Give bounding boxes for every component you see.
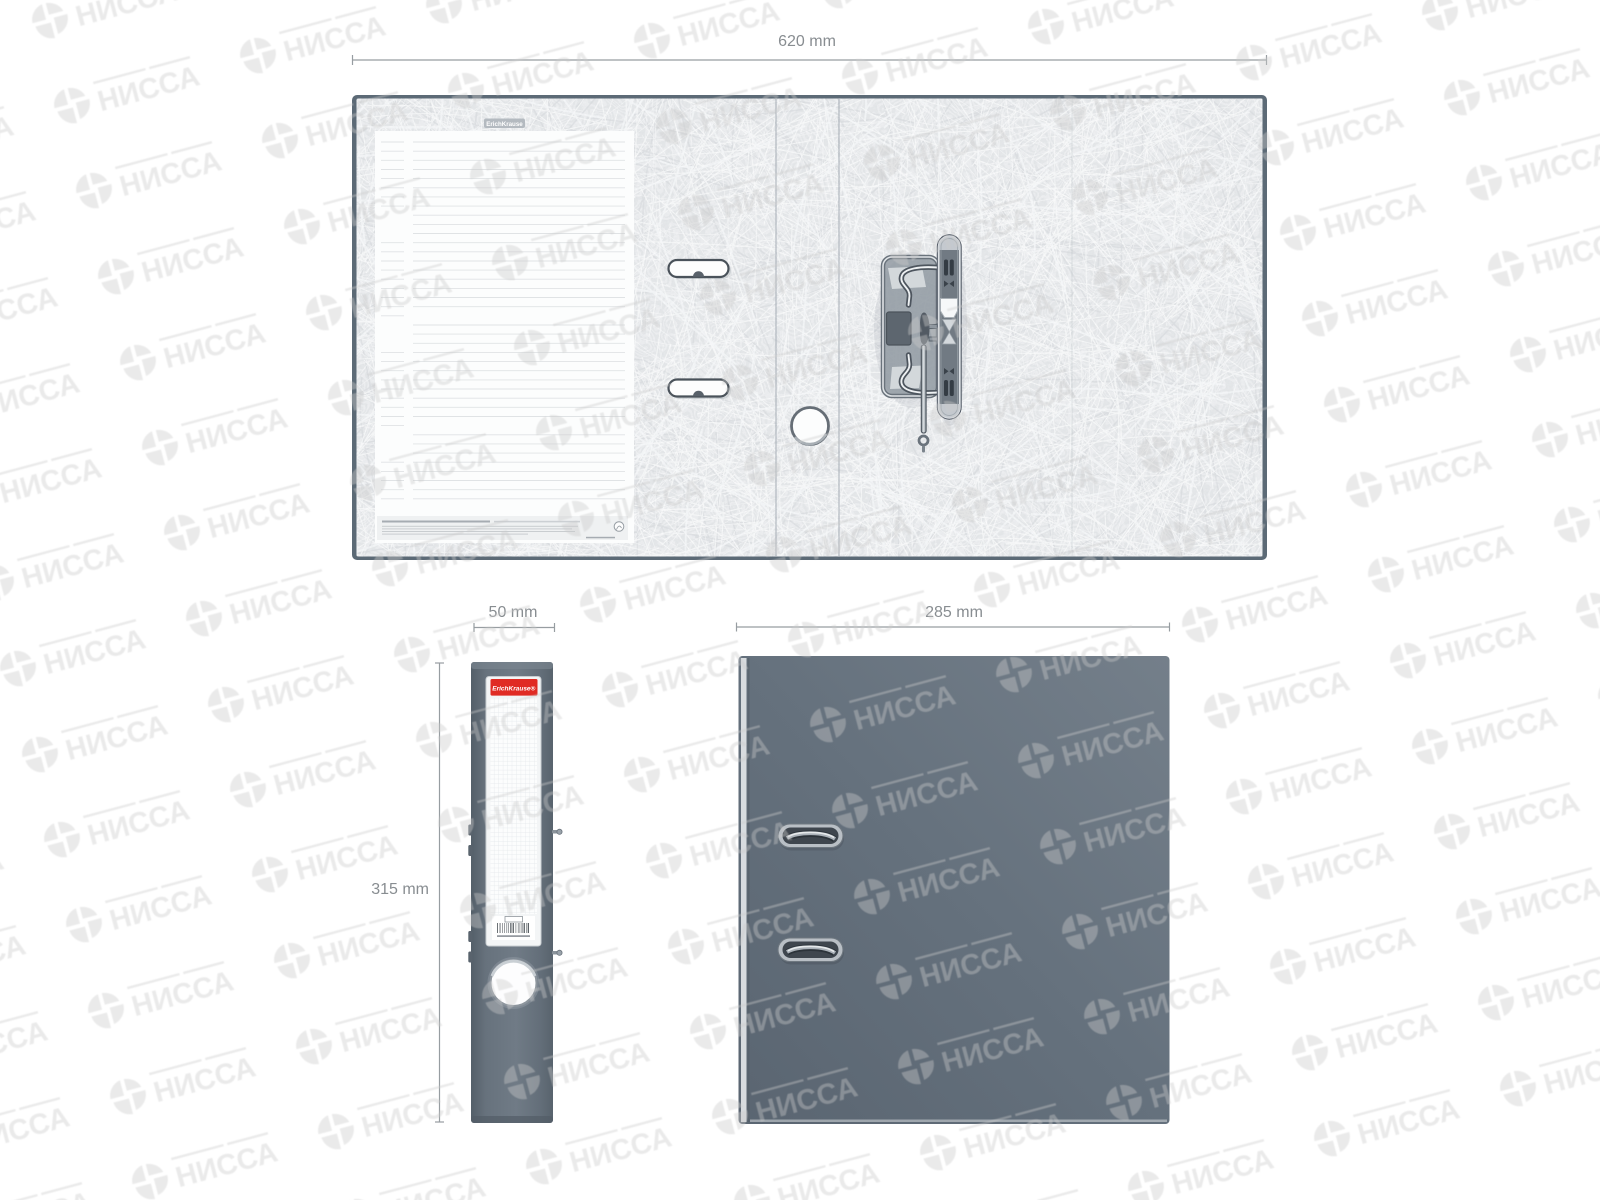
svg-text:315 mm: 315 mm [371, 881, 429, 898]
svg-text:ErichKrause®: ErichKrause® [492, 685, 535, 693]
svg-text:ErichKrause: ErichKrause [486, 121, 523, 128]
svg-text:620 mm: 620 mm [778, 33, 836, 50]
